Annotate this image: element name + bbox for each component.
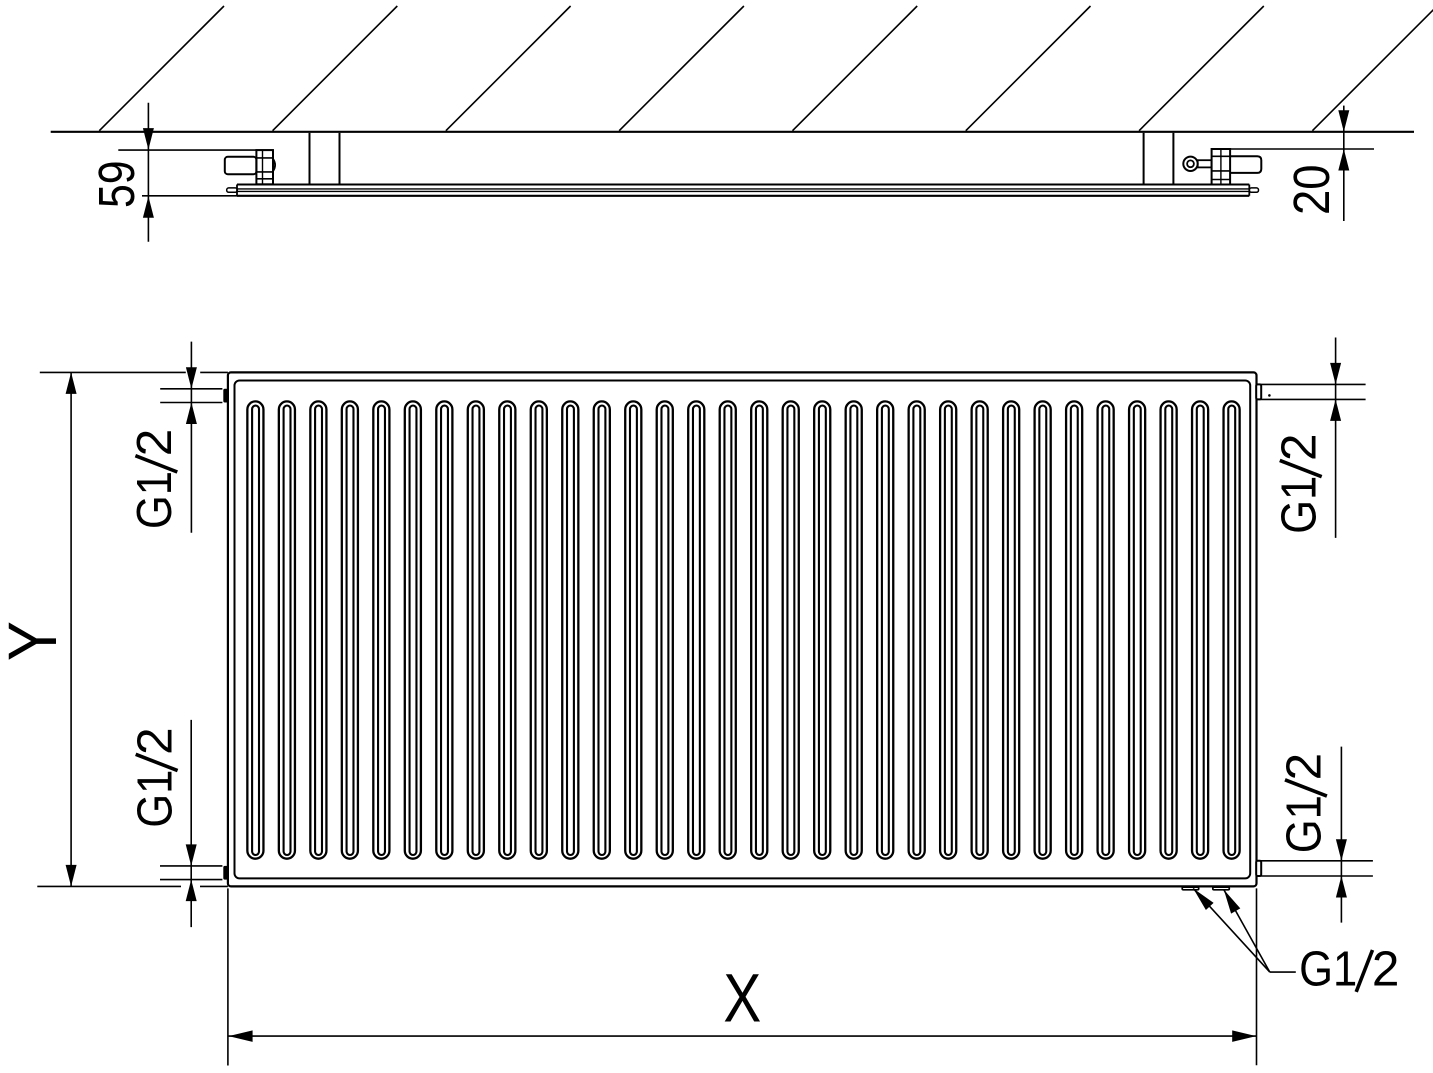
svg-text:G1: G1 bbox=[127, 770, 182, 828]
svg-text:G1: G1 bbox=[1299, 941, 1357, 996]
svg-text:G1: G1 bbox=[1276, 795, 1331, 853]
svg-text:G1: G1 bbox=[126, 471, 181, 529]
svg-text:2: 2 bbox=[1372, 942, 1400, 997]
svg-text:2: 2 bbox=[1271, 433, 1326, 461]
svg-text:20: 20 bbox=[1284, 164, 1341, 214]
svg-text:Y: Y bbox=[0, 621, 71, 661]
svg-text:2: 2 bbox=[127, 727, 182, 755]
svg-text:2: 2 bbox=[1277, 753, 1332, 781]
svg-text:2: 2 bbox=[127, 429, 182, 457]
svg-text:G1: G1 bbox=[1271, 476, 1326, 534]
svg-text:X: X bbox=[723, 960, 761, 1036]
svg-text:59: 59 bbox=[88, 160, 145, 208]
